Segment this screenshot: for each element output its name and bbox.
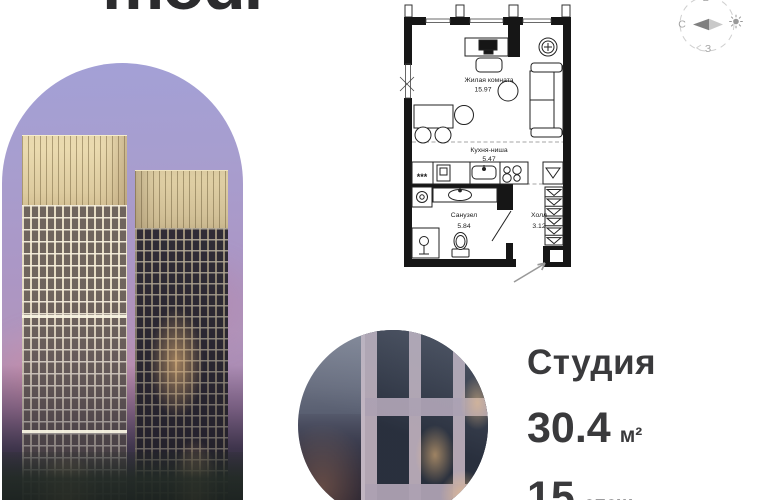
listing-page: mod.	[0, 0, 770, 500]
round-table-icon	[498, 81, 518, 101]
compass-east-label: В	[702, 0, 709, 4]
apartment-floor: 15этаж	[527, 476, 656, 500]
facade-circle-photo	[298, 330, 488, 500]
floor-value: 15	[527, 473, 575, 500]
room-area-hall: 3.12	[532, 223, 545, 230]
washing-machine-icon	[412, 187, 432, 207]
ventilation-icon	[539, 38, 557, 56]
cabinet-icon	[437, 165, 450, 181]
room-label-hall: Холл	[531, 212, 547, 219]
trees-silhouette	[2, 452, 243, 500]
tower-right-crown	[135, 170, 228, 229]
desk-icon	[465, 38, 508, 72]
toilet-icon	[452, 233, 469, 258]
listing-info: Студия 30.4м² 15этаж	[527, 345, 656, 500]
compass-west-label: З	[705, 43, 711, 55]
towers-arch-photo	[2, 63, 243, 500]
facade-band	[22, 430, 127, 433]
tower-left	[22, 135, 127, 500]
dining-table-icon	[414, 105, 453, 143]
fridge-icon: ***	[417, 172, 428, 182]
floor-plan: ***	[383, 0, 583, 290]
area-value: 30.4	[527, 404, 611, 452]
tower-right	[135, 170, 228, 500]
bathroom-door-icon	[492, 211, 511, 241]
glass-reflection	[298, 330, 488, 500]
sun-icon	[729, 15, 743, 29]
compass: С З В	[664, 0, 756, 62]
tower-left-crown	[22, 135, 127, 206]
room-label-living: Жилая комната	[464, 77, 513, 84]
area-unit: м²	[620, 424, 643, 447]
facade-tabs-icon	[405, 5, 570, 17]
wardrobe-icon	[543, 162, 563, 245]
ring-arrowhead-icon	[697, 45, 702, 51]
compass-needle-icon	[693, 19, 723, 30]
room-label-bathroom: Санузел	[451, 212, 478, 219]
room-area-kitchen: 5.47	[482, 156, 495, 163]
armchair-icon	[455, 106, 474, 125]
brand-logo: mod.	[102, 0, 261, 20]
kitchen-sink-icon	[472, 165, 496, 179]
shower-icon	[412, 228, 439, 258]
facade-band	[22, 315, 127, 318]
vanity-sink-icon	[433, 188, 497, 202]
floor-unit: этаж	[584, 493, 632, 500]
sofa-icon	[530, 63, 563, 137]
room-label-kitchen: Кухня-ниша	[470, 147, 507, 154]
apartment-area: 30.4м²	[527, 407, 656, 450]
entrance-arrow-icon	[514, 263, 545, 282]
lit-windows-glow	[149, 308, 204, 418]
room-area-bathroom: 5.84	[457, 223, 470, 230]
apartment-type-label: Студия	[527, 345, 656, 380]
room-area-living: 15.97	[474, 87, 491, 94]
compass-north-label: С	[678, 19, 686, 31]
entrance-threshold	[550, 250, 563, 262]
